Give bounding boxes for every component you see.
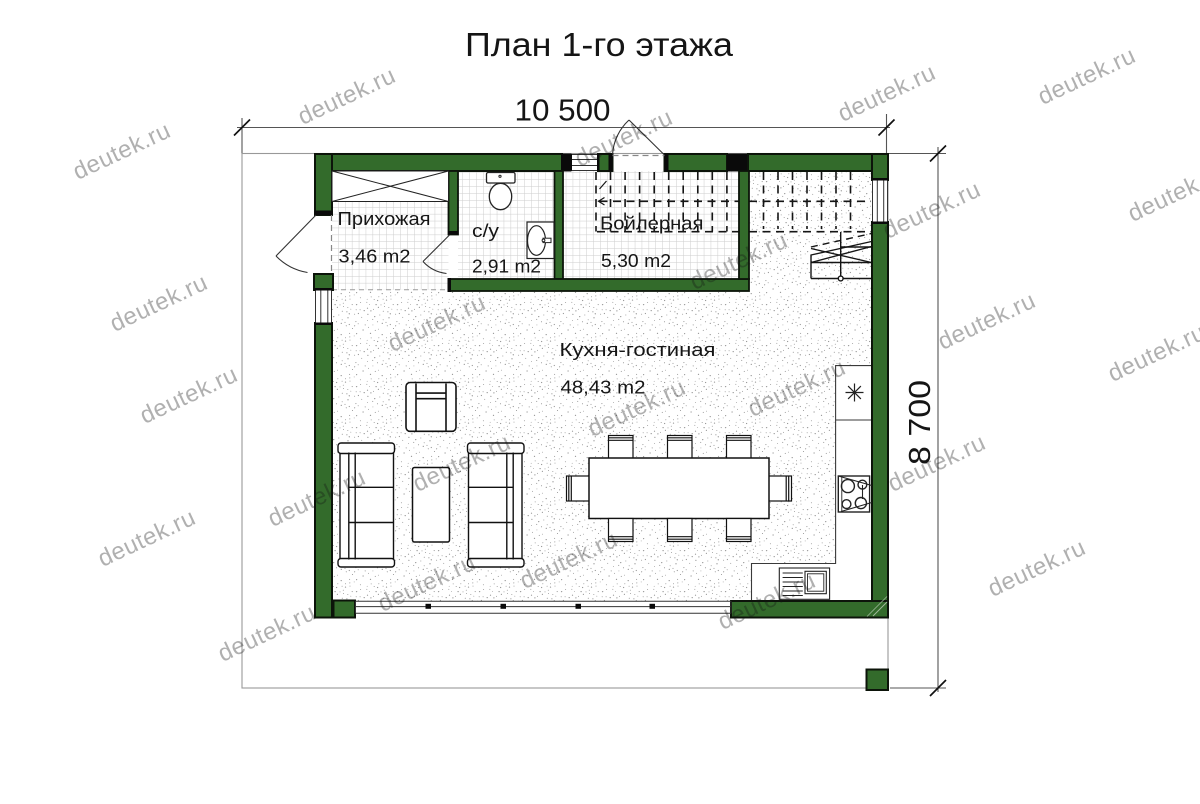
svg-text:deutek.ru: deutek.ru bbox=[934, 287, 1040, 356]
svg-text:deutek.ru: deutek.ru bbox=[106, 269, 212, 338]
svg-text:deutek.ru: deutek.ru bbox=[879, 176, 985, 245]
svg-text:10 500: 10 500 bbox=[515, 93, 611, 128]
svg-text:deutek.ru: deutek.ru bbox=[214, 599, 320, 668]
svg-text:deutek.ru: deutek.ru bbox=[1034, 42, 1140, 111]
svg-text:План 1-го этажа: План 1-го этажа bbox=[465, 26, 734, 63]
svg-text:2,91 m2: 2,91 m2 bbox=[472, 256, 541, 277]
svg-text:deutek.ru: deutek.ru bbox=[69, 117, 175, 186]
svg-text:deutek.ru: deutek.ru bbox=[1124, 159, 1200, 228]
svg-text:deutek.ru: deutek.ru bbox=[984, 534, 1090, 603]
svg-text:Прихожая: Прихожая bbox=[338, 208, 431, 229]
svg-text:5,30 m2: 5,30 m2 bbox=[601, 250, 671, 271]
svg-text:Бойлерная: Бойлерная bbox=[600, 213, 704, 234]
svg-text:deutek.ru: deutek.ru bbox=[94, 504, 200, 573]
svg-text:deutek.ru: deutek.ru bbox=[1104, 319, 1200, 388]
svg-text:с/у: с/у bbox=[472, 220, 500, 241]
svg-text:deutek.ru: deutek.ru bbox=[294, 62, 400, 131]
svg-text:3,46 m2: 3,46 m2 bbox=[339, 246, 411, 267]
svg-text:deutek.ru: deutek.ru bbox=[136, 361, 242, 430]
svg-text:Кухня-гостиная: Кухня-гостиная bbox=[560, 339, 716, 360]
